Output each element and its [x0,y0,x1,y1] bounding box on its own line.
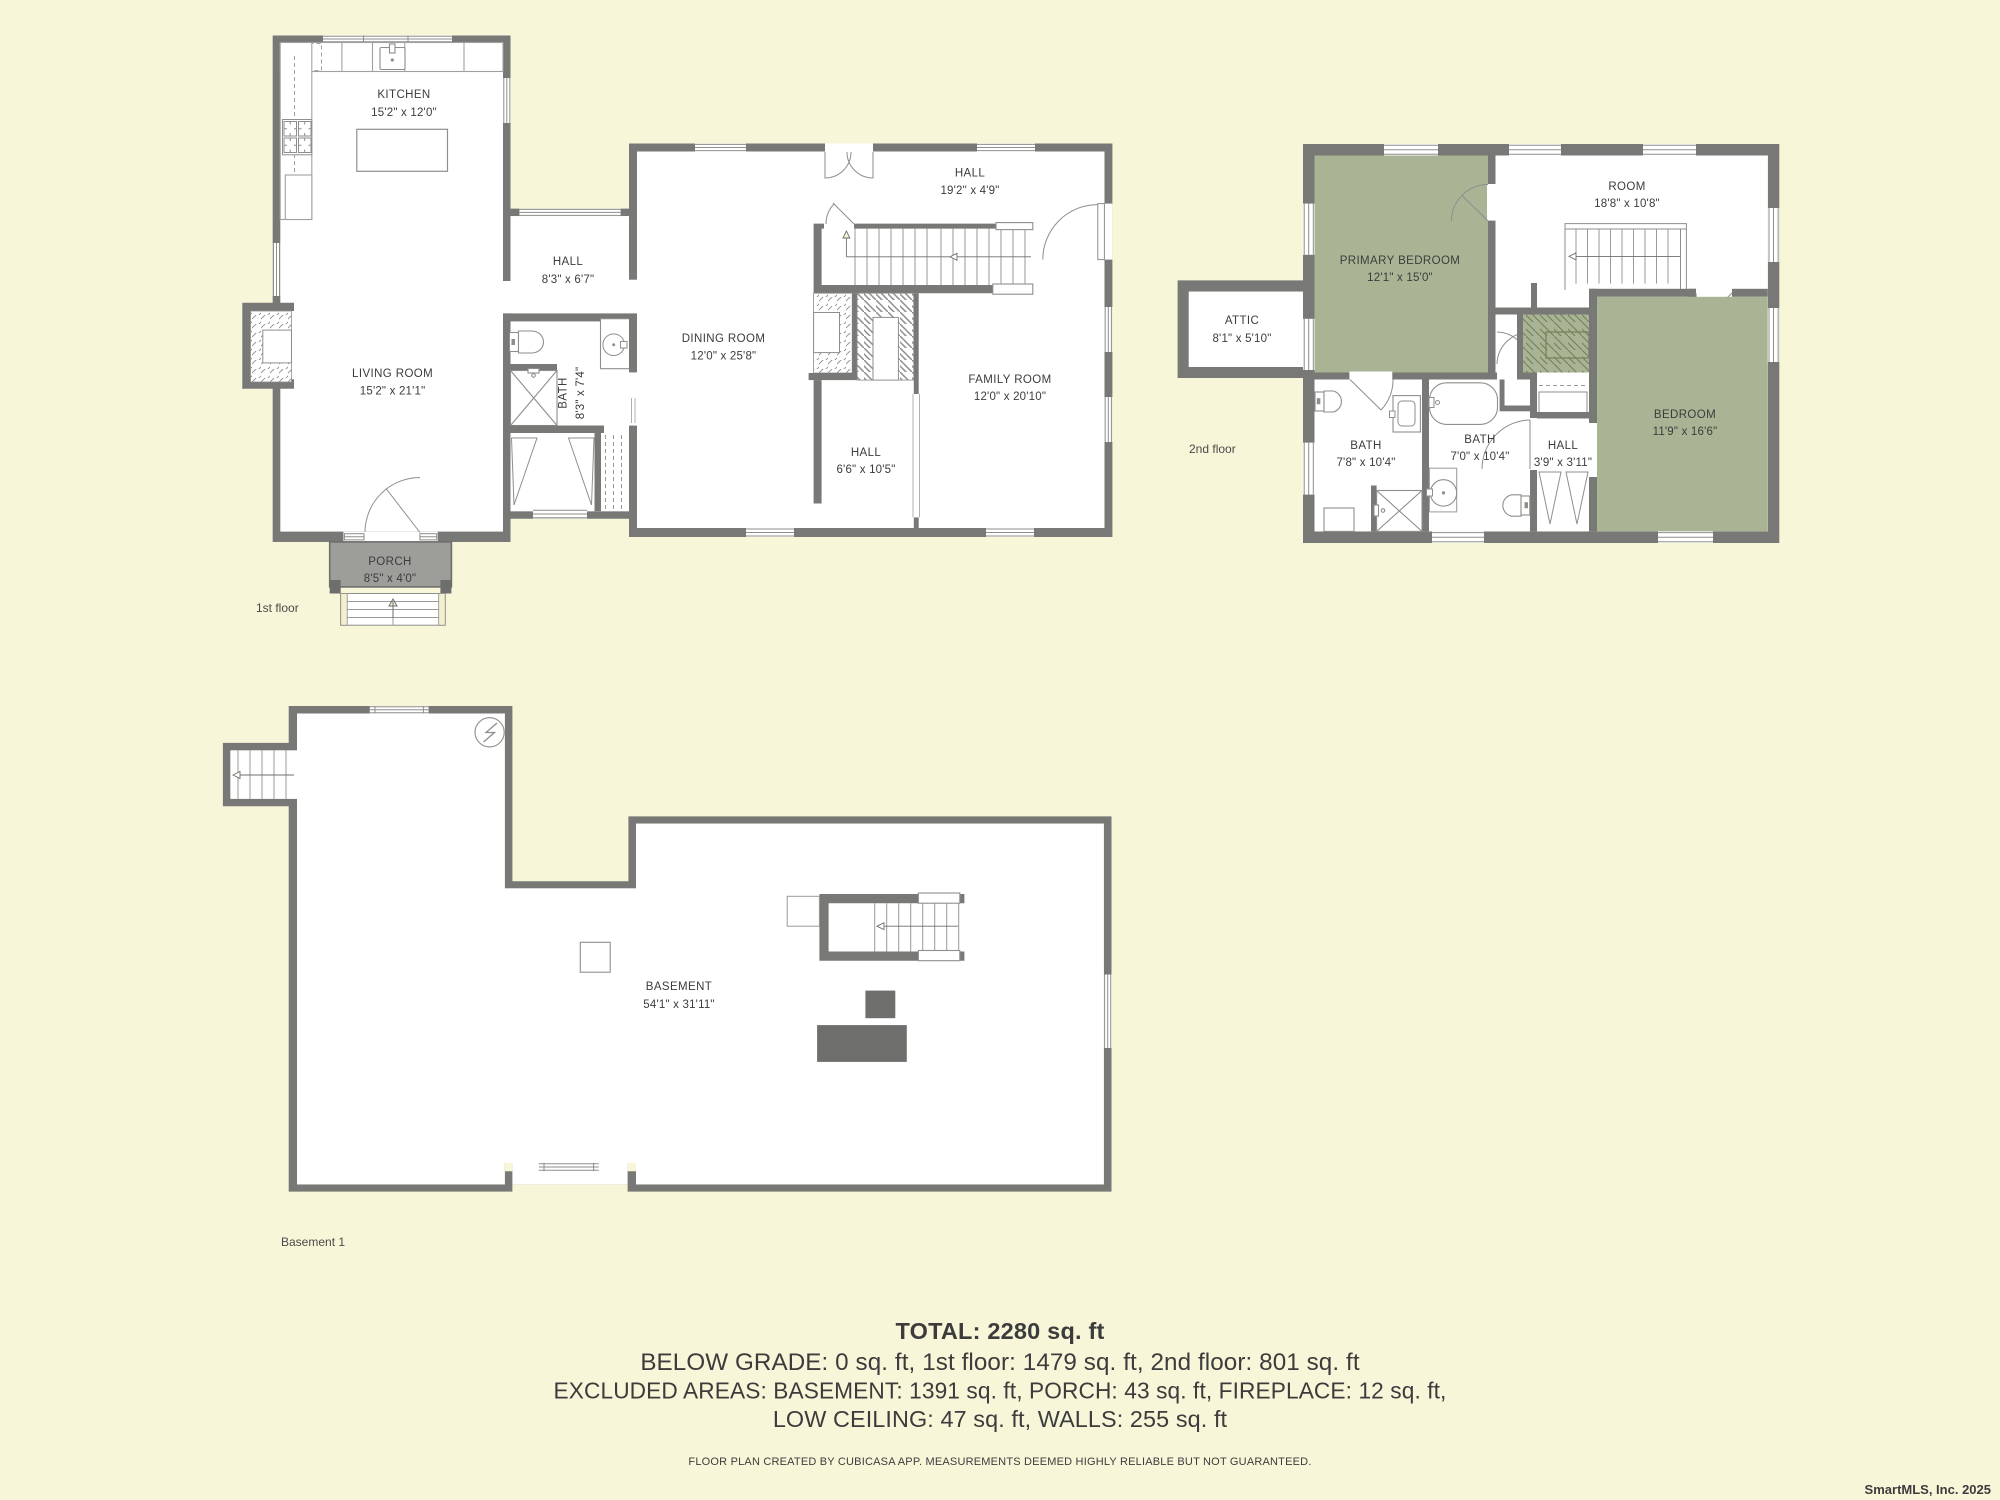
svg-text:8'1" x 5'10": 8'1" x 5'10" [1212,333,1271,345]
svg-text:HALL: HALL [553,256,584,268]
svg-text:7'0" x 10'4": 7'0" x 10'4" [1450,451,1509,463]
svg-text:HALL: HALL [1548,440,1579,452]
svg-text:EXCLUDED AREAS: BASEMENT: 1391: EXCLUDED AREAS: BASEMENT: 1391 sq. ft, P… [554,1378,1447,1404]
svg-text:FAMILY ROOM: FAMILY ROOM [968,374,1051,386]
svg-text:BEDROOM: BEDROOM [1654,409,1716,421]
svg-text:BASEMENT: BASEMENT [646,981,712,993]
svg-text:12'0" x 20'10": 12'0" x 20'10" [974,391,1046,403]
svg-text:12'1" x 15'0": 12'1" x 15'0" [1367,272,1433,284]
svg-text:19'2" x 4'9": 19'2" x 4'9" [940,185,999,197]
svg-text:BATH: BATH [558,377,570,408]
svg-text:BATH: BATH [1350,440,1381,452]
svg-text:DINING ROOM: DINING ROOM [682,333,766,345]
svg-text:HALL: HALL [851,447,882,459]
svg-text:PRIMARY BEDROOM: PRIMARY BEDROOM [1340,255,1461,267]
svg-text:11'9" x 16'6": 11'9" x 16'6" [1653,426,1718,438]
svg-text:LIVING ROOM: LIVING ROOM [352,368,433,380]
svg-text:3'9" x 3'11": 3'9" x 3'11" [1534,457,1592,469]
svg-text:PORCH: PORCH [368,556,412,568]
svg-text:ATTIC: ATTIC [1225,315,1259,327]
svg-text:8'3" x 7'4": 8'3" x 7'4" [575,367,587,419]
svg-text:12'0" x 25'8": 12'0" x 25'8" [691,351,757,363]
svg-text:SmartMLS, Inc. 2025: SmartMLS, Inc. 2025 [1865,1482,1991,1497]
svg-text:18'8" x 10'8": 18'8" x 10'8" [1594,198,1660,210]
svg-text:Basement 1: Basement 1 [281,1235,345,1249]
svg-text:KITCHEN: KITCHEN [377,89,430,101]
svg-text:LOW CEILING: 47 sq. ft, WALLS:: LOW CEILING: 47 sq. ft, WALLS: 255 sq. f… [773,1406,1228,1432]
svg-text:TOTAL: 2280 sq. ft: TOTAL: 2280 sq. ft [895,1318,1104,1344]
svg-text:ROOM: ROOM [1608,181,1645,193]
svg-text:FLOOR PLAN CREATED BY CUBICASA: FLOOR PLAN CREATED BY CUBICASA APP. MEAS… [688,1456,1311,1468]
svg-text:2nd floor: 2nd floor [1189,442,1236,456]
svg-text:BELOW GRADE: 0 sq. ft, 1st flo: BELOW GRADE: 0 sq. ft, 1st floor: 1479 s… [640,1349,1359,1376]
svg-text:BATH: BATH [1464,434,1495,446]
svg-text:8'3" x 6'7": 8'3" x 6'7" [542,274,594,286]
svg-text:6'6" x 10'5": 6'6" x 10'5" [836,464,895,476]
svg-text:54'1" x 31'11": 54'1" x 31'11" [643,999,714,1011]
svg-text:7'8" x 10'4": 7'8" x 10'4" [1336,457,1395,469]
svg-text:8'5" x 4'0": 8'5" x 4'0" [364,573,416,585]
svg-text:1st floor: 1st floor [256,601,299,615]
svg-text:15'2" x 21'1": 15'2" x 21'1" [360,386,426,398]
svg-text:HALL: HALL [955,168,986,180]
svg-text:15'2" x 12'0": 15'2" x 12'0" [371,107,437,119]
